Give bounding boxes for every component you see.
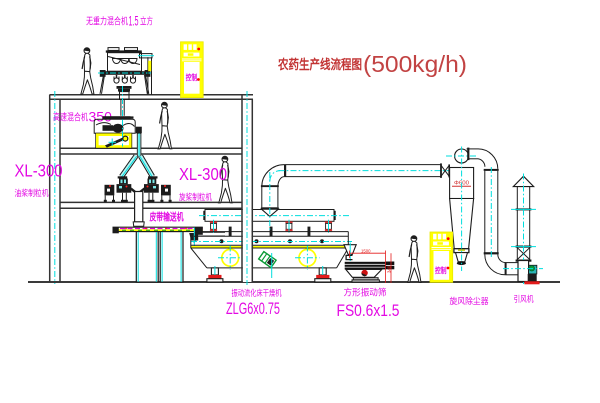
- svg-text:无重力混合机: 无重力混合机: [86, 16, 128, 28]
- svg-text:XL-300: XL-300: [15, 161, 63, 181]
- svg-text:引风机: 引风机: [514, 294, 534, 304]
- svg-text:ZLG6x0.75: ZLG6x0.75: [226, 299, 280, 318]
- svg-text:油桨制粒机: 油桨制粒机: [15, 188, 49, 198]
- svg-text:高速混合机: 高速混合机: [53, 112, 88, 124]
- svg-text:控制: 控制: [435, 265, 447, 275]
- svg-text:1.5: 1.5: [129, 14, 139, 29]
- svg-text:皮带输送机: 皮带输送机: [149, 211, 184, 224]
- svg-text:340: 340: [387, 265, 392, 273]
- svg-text:1500: 1500: [361, 248, 371, 253]
- svg-text:FS0.6x1.5: FS0.6x1.5: [337, 301, 400, 320]
- svg-text:(500kg/h): (500kg/h): [363, 51, 467, 77]
- svg-text:方形振动筛: 方形振动筛: [344, 287, 387, 298]
- svg-text:XL-300: XL-300: [179, 164, 227, 184]
- svg-text:旋桨制粒机: 旋桨制粒机: [179, 192, 212, 202]
- svg-text:立方: 立方: [140, 16, 153, 28]
- svg-text:振动流化床干燥机: 振动流化床干燥机: [232, 288, 282, 298]
- svg-text:农药生产线流程图: 农药生产线流程图: [277, 57, 362, 72]
- svg-text:控制: 控制: [186, 72, 198, 82]
- svg-text:旋风除尘器: 旋风除尘器: [450, 296, 489, 306]
